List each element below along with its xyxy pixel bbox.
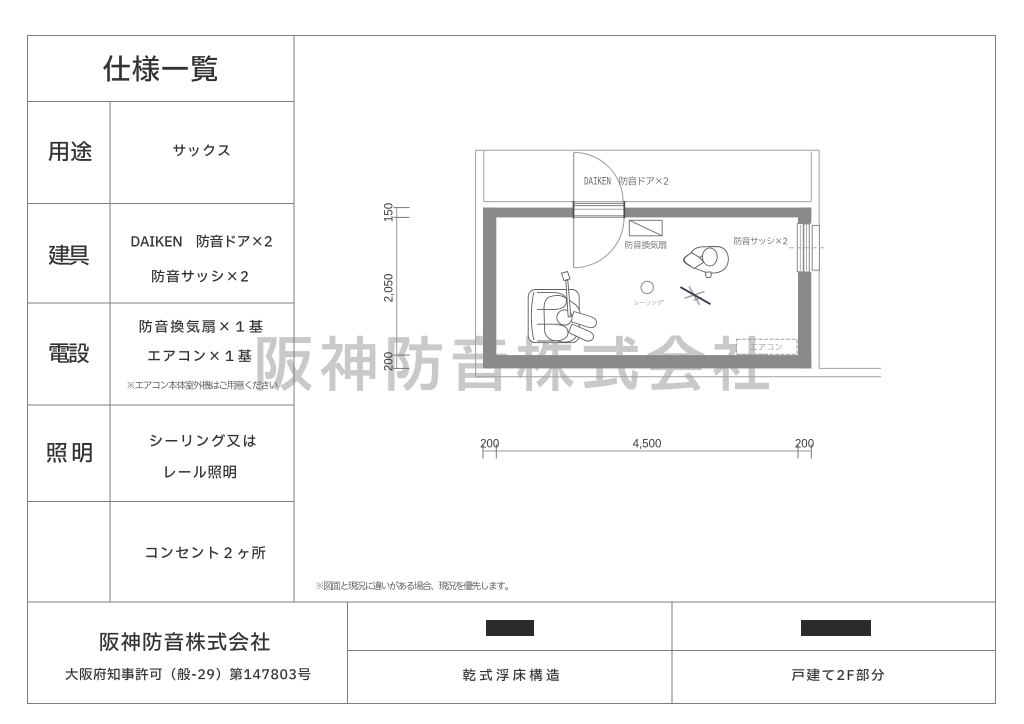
svg-text:200: 200	[795, 439, 814, 451]
svg-text:200: 200	[480, 439, 499, 451]
svg-text:200: 200	[384, 352, 396, 371]
svg-text:150: 150	[384, 203, 396, 222]
svg-text:4,500: 4,500	[633, 439, 662, 451]
svg-text:DAIKEN: DAIKEN	[584, 177, 611, 189]
svg-text:2,050: 2,050	[384, 274, 396, 303]
